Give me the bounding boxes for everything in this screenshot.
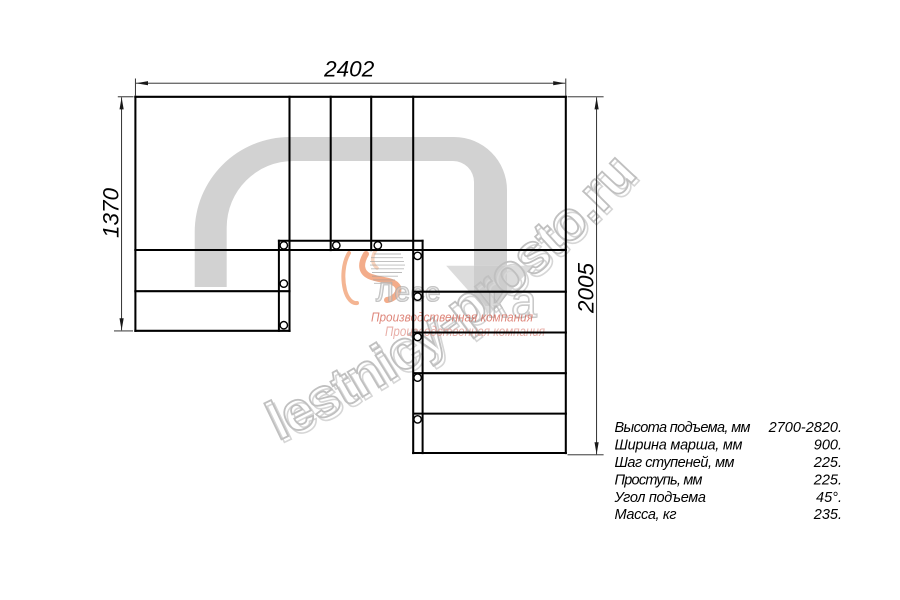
svg-text:Высота подъема, мм: Высота подъема, мм	[615, 420, 751, 436]
svg-text:Производственная компания: Производственная компания	[371, 310, 533, 325]
svg-text:2700-2820.: 2700-2820.	[768, 420, 842, 436]
svg-text:900.: 900.	[814, 438, 842, 454]
svg-text:Угол подъема: Угол подъема	[614, 490, 707, 506]
svg-text:225.: 225.	[813, 455, 842, 471]
svg-text:Проступь, мм: Проступь, мм	[615, 472, 703, 488]
svg-text:Ширина марша, мм: Ширина марша, мм	[615, 438, 743, 454]
svg-text:45°.: 45°.	[816, 490, 842, 506]
svg-text:Масса, кг: Масса, кг	[615, 507, 677, 523]
svg-text:2005: 2005	[574, 262, 599, 314]
svg-text:Шаг ступеней, мм: Шаг ступеней, мм	[615, 455, 735, 471]
svg-text:225.: 225.	[813, 472, 842, 488]
svg-text:2402: 2402	[323, 57, 375, 82]
svg-text:1370: 1370	[99, 187, 124, 238]
svg-text:235.: 235.	[813, 507, 842, 523]
